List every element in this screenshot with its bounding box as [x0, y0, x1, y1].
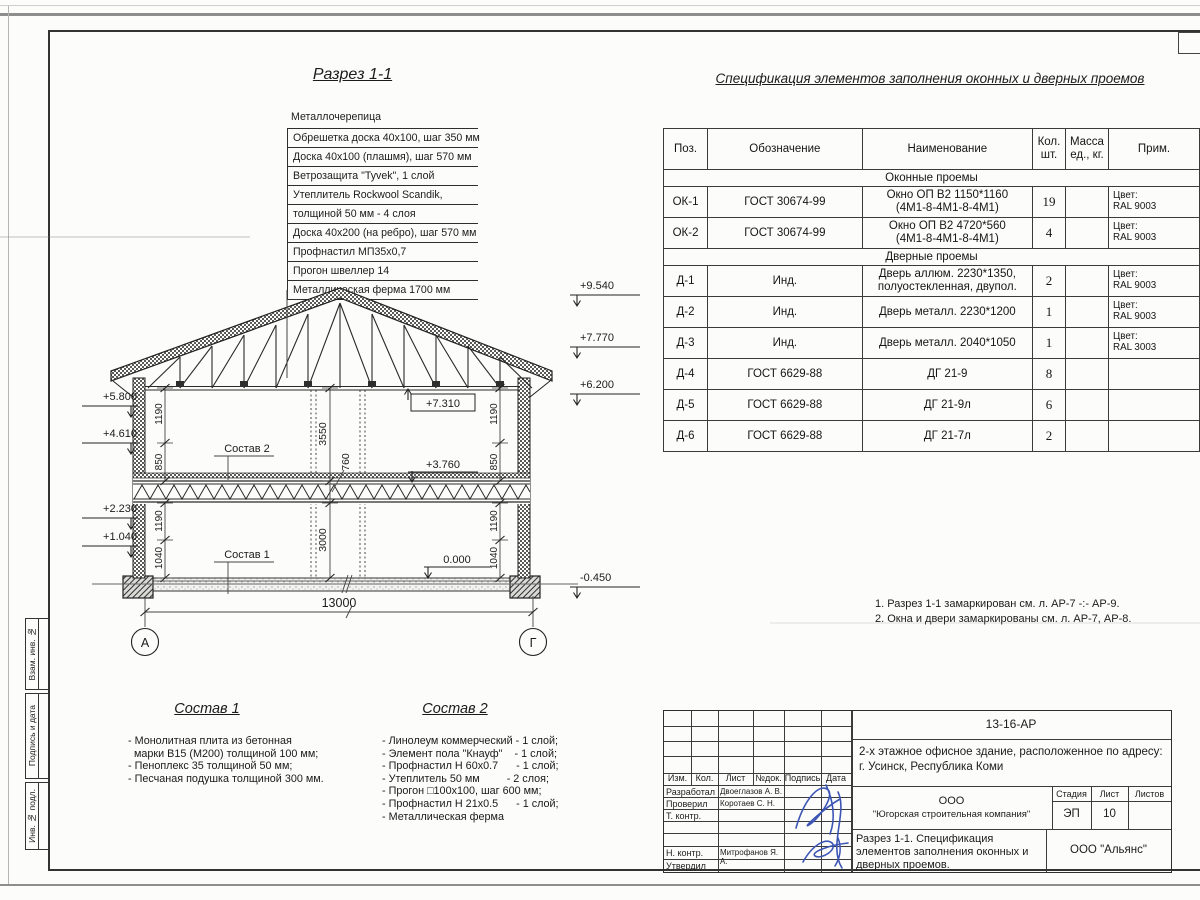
dim-floor-thickness: 760 [340, 453, 352, 471]
elevation-value: +4.610 [103, 428, 137, 440]
elevation-value: +7.770 [580, 332, 614, 344]
side-label: Инв. № подл. [27, 789, 37, 843]
tb-sheet-number: 10 [1091, 808, 1128, 820]
signature-1 [796, 785, 840, 834]
tb-object-line1: 2-х этажное офисное здание, расположенно… [859, 746, 1169, 758]
elevation-value: +2.230 [103, 503, 137, 515]
composition-line: - Прогон □100х100, шаг 600 мм; [382, 785, 559, 798]
composition-line: - Металлическая ферма [382, 811, 559, 824]
dim-window-sill: 850 [154, 453, 165, 470]
sheet-left-edge [8, 6, 9, 884]
elevation-value: +3.760 [426, 459, 460, 471]
elevation-value: +7.310 [426, 398, 460, 410]
col-header-name: Наименование [862, 129, 1032, 170]
col-header-designation: Обозначение [708, 129, 863, 170]
note-line: 1. Разрез 1-1 замаркирован см. л. АР-7 -… [875, 597, 1131, 612]
roof-band [111, 288, 552, 381]
dim-floor1-height: 3000 [317, 528, 329, 552]
spec-row: Д-3Инд. Дверь металл. 2040*1050 1 Цвет:R… [664, 328, 1200, 359]
roof-layer: Доска 40х200 (на ребро), шаг 570 мм [288, 224, 478, 243]
section-view-title: Разрез 1-1 [280, 66, 425, 84]
dim-floor2-height: 3550 [317, 422, 329, 446]
overall-dim: 13000 А Г [132, 596, 547, 656]
col-header-mass: Массаед., кг. [1065, 129, 1108, 170]
spec-group-doors: Дверные проемы [664, 249, 1200, 266]
building-section-drawing: 3550 760 3000 1190 850 1190 1040 [55, 255, 655, 670]
signatures-overlay [660, 700, 900, 900]
spec-row: Д-4ГОСТ 6629-88 ДГ 21-9 8 [664, 359, 1200, 390]
elevation-value: -0.450 [580, 572, 611, 584]
spec-table-title: Спецификация элементов заполнения оконны… [690, 71, 1170, 86]
spec-row: ОК-2ГОСТ 30674-99 Окно ОП В2 4720*560(4М… [664, 218, 1200, 249]
elevation-marks-right: +9.540 +7.770 +6.200 -0.450 [570, 280, 640, 598]
tb-sheets-label: Листов [1128, 789, 1171, 799]
dim-window-sill: 1040 [154, 546, 165, 569]
spec-header-row: Поз. Обозначение Наименование Кол.шт. Ма… [664, 129, 1200, 170]
roof-layer: Обрешетка доска 40х100, шаг 350 мм [288, 129, 478, 148]
composition-line: - Профнастил Н 21х0.5 - 1 слой; [382, 798, 559, 811]
spec-group-windows: Оконные проемы [664, 170, 1200, 187]
signature-2 [803, 838, 848, 866]
scan-smudge [0, 236, 250, 238]
spec-row: Д-2Инд. Дверь металл. 2230*1200 1 Цвет:R… [664, 297, 1200, 328]
tb-sheet-label: Лист [1091, 789, 1128, 799]
composition-line: - Пеноплекс 35 толщиной 50 мм; [128, 760, 324, 773]
side-label: Подпись и дата [27, 705, 37, 766]
composition-leaders: Состав 2 Состав 1 [214, 443, 274, 594]
tb-object-line2: г. Усинск, Республика Коми [859, 761, 1169, 773]
frame-top [48, 30, 1200, 32]
elevation-value: +6.200 [580, 379, 614, 391]
sheet-bottom-edge [0, 884, 1200, 886]
sheet-top-edge [0, 13, 1200, 16]
col-header-pos: Поз. [664, 129, 708, 170]
floor-truss [133, 473, 530, 504]
corner-stamp-box [1178, 32, 1200, 54]
composition-line: - Линолеум коммерческий - 1 слой; [382, 735, 559, 748]
col-header-qty: Кол.шт. [1033, 129, 1066, 170]
composition-line: - Утеплитель 50 мм - 2 слоя; [382, 773, 559, 786]
drawing-notes: 1. Разрез 1-1 замаркирован см. л. АР-7 -… [875, 597, 1131, 628]
col-header-note: Прим. [1109, 129, 1200, 170]
dim-window-height: 1190 [489, 403, 500, 425]
dim-window-height: 1190 [489, 510, 500, 532]
roof-layer: толщиной 50 мм - 4 слоя [288, 205, 478, 224]
elevation-marks-left: +5.800 +4.610 +2.230 +1.040 [82, 391, 138, 557]
leader-label-sostav1: Состав 1 [224, 549, 270, 561]
side-box-inv: Инв. № подл. [25, 782, 50, 850]
elevation-value: 0.000 [443, 554, 471, 566]
elevation-value: +9.540 [580, 280, 614, 292]
composition-line: - Песчаная подушка толщиной 300 мм. [128, 773, 324, 786]
axis-label-a: А [141, 636, 150, 650]
side-box-podpis: Подпись и дата [25, 693, 50, 779]
spec-row: ОК-1ГОСТ 30674-99 Окно ОП В2 1150*1160(4… [664, 187, 1200, 218]
spec-table: Поз. Обозначение Наименование Кол.шт. Ма… [663, 128, 1200, 452]
dim-window-height: 1190 [154, 403, 165, 425]
roof-top-layer-label: Металлочерепица [291, 111, 381, 123]
dim-overall-width: 13000 [322, 596, 357, 610]
foundation-block-right [510, 576, 540, 598]
dim-window-height: 1190 [154, 510, 165, 532]
sheet-top-edge-thin [0, 5, 1200, 6]
sostav1-list: - Монолитная плита из бетонная марки В15… [128, 735, 324, 785]
spec-row: Д-6ГОСТ 6629-88 ДГ 21-7л 2 [664, 421, 1200, 452]
tb-stage-value: ЭП [1052, 808, 1091, 820]
composition-line: марки В15 (М200) толщиной 100 мм; [128, 748, 324, 761]
sostav2-list: - Линолеум коммерческий - 1 слой; - Элем… [382, 735, 559, 823]
drawing-sheet: Разрез 1-1 Спецификация элементов заполн… [0, 0, 1200, 900]
composition-line: - Монолитная плита из бетонная [128, 735, 324, 748]
composition-line: - Элемент пола "Кнауф" - 1 слой; [382, 748, 559, 761]
leader-label-sostav2: Состав 2 [224, 443, 270, 455]
elevation-value: +5.800 [103, 391, 137, 403]
elevation-value: +1.040 [103, 531, 137, 543]
roof-layer: Утеплитель Rockwool Scandik, [288, 186, 478, 205]
sostav2-title: Состав 2 [415, 701, 495, 717]
axis-label-g: Г [530, 636, 537, 650]
tb-contractor: ООО "Альянс" [1046, 844, 1171, 856]
dim-window-sill: 850 [489, 453, 500, 470]
side-box-vzam: Взам. инв. № [25, 618, 50, 690]
note-line: 2. Окна и двери замаркированы см. л. АР-… [875, 612, 1131, 627]
spec-row: Д-5ГОСТ 6629-88 ДГ 21-9л 6 [664, 390, 1200, 421]
tb-stage-label: Стадия [1052, 789, 1091, 799]
side-label: Взам. инв. № [27, 627, 37, 681]
spec-row: Д-1Инд. Дверь аллюм. 2230*1350,полуостек… [664, 266, 1200, 297]
dim-window-sill: 1040 [489, 546, 500, 569]
composition-line: - Профнастил Н 60х0.7 - 1 слой; [382, 760, 559, 773]
foundation-block-left [123, 576, 153, 598]
roof-layer: Доска 40х100 (плашмя), шаг 570 мм [288, 148, 478, 167]
sostav1-title: Состав 1 [167, 701, 247, 717]
roof-layer: Ветрозащита "Tyvek", 1 слой [288, 167, 478, 186]
